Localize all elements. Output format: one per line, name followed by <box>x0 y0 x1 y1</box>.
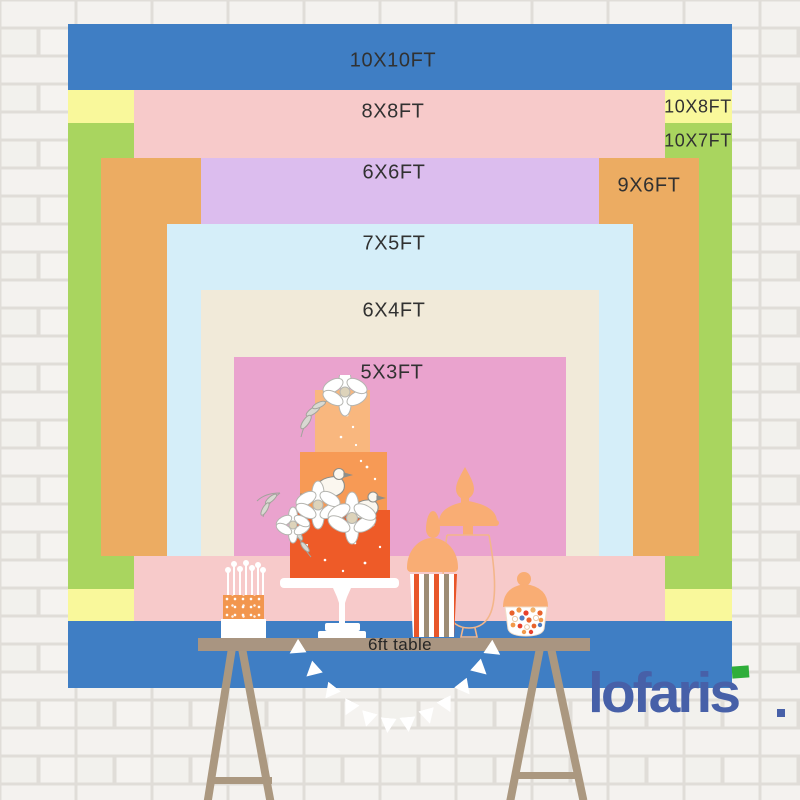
candle <box>227 572 229 596</box>
logo-accent-mark <box>732 665 750 678</box>
mini-cake-base <box>221 619 266 638</box>
candle <box>233 566 235 596</box>
trestle-crossbar <box>518 772 576 779</box>
size-label-10x8ft: 10X8FT <box>664 97 732 118</box>
size-label-6x4ft: 6X4FT <box>362 300 425 323</box>
candle <box>262 572 264 596</box>
table-label: 6ft table <box>368 635 432 655</box>
tiered-cake-illustration <box>255 375 405 641</box>
size-label-8x8ft: 8X8FT <box>361 101 424 124</box>
candle <box>239 571 241 596</box>
lofaris-logo: lofaris <box>588 660 798 730</box>
candle <box>257 567 259 596</box>
size-label-10x7ft: 10X7FT <box>664 131 732 152</box>
mini-cake-body <box>223 595 264 619</box>
logo-wordmark: lofaris <box>588 660 738 726</box>
size-label-6x6ft: 6X6FT <box>362 162 425 185</box>
size-label-7x5ft: 7X5FT <box>362 233 425 256</box>
logo-period-dot <box>777 709 785 717</box>
trestle-crossbar <box>212 777 272 784</box>
backdrop-size-chart: 10X10FT 10X8FT 10X7FT 8X8FT 9X6FT 6X6FT … <box>0 0 800 800</box>
popcorn-striped-box <box>409 574 458 637</box>
candle <box>251 570 253 596</box>
size-label-5x3ft: 5X3FT <box>360 362 423 385</box>
size-label-10x10ft: 10X10FT <box>350 50 436 73</box>
size-label-9x6ft: 9X6FT <box>617 175 680 198</box>
candle <box>245 565 247 596</box>
